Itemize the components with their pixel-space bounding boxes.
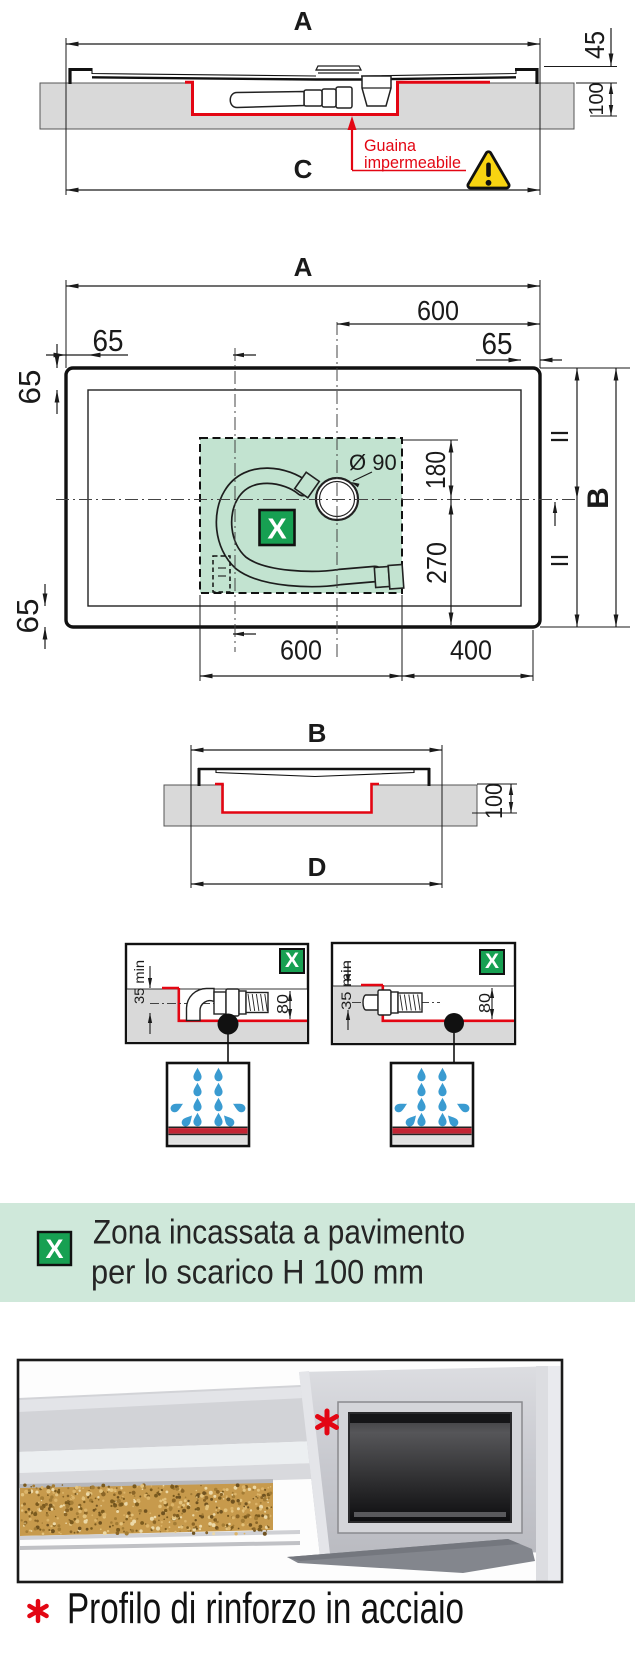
svg-text:C: C	[294, 154, 313, 184]
svg-text:A: A	[294, 252, 313, 282]
svg-text:600: 600	[280, 635, 322, 666]
svg-text:X: X	[485, 950, 499, 973]
svg-text:Zona incassata a pavimento: Zona incassata a pavimento	[93, 1214, 465, 1252]
svg-text:180: 180	[420, 451, 451, 489]
svg-text:65: 65	[10, 599, 45, 634]
svg-text:per lo scarico H 100 mm: per lo scarico H 100 mm	[91, 1254, 424, 1292]
svg-text:X: X	[45, 1234, 63, 1264]
svg-text:65: 65	[93, 323, 124, 358]
svg-text:100: 100	[481, 783, 508, 819]
svg-text:B: B	[582, 487, 615, 509]
svg-text:impermeabile: impermeabile	[364, 153, 461, 172]
svg-text:80: 80	[275, 994, 292, 1014]
svg-text:X: X	[267, 514, 287, 546]
svg-text:B: B	[308, 718, 327, 748]
svg-text:A: A	[294, 6, 313, 36]
svg-text:D: D	[308, 852, 327, 882]
svg-text:Ø 90: Ø 90	[349, 450, 397, 475]
svg-text:400: 400	[450, 635, 492, 666]
svg-text:600: 600	[417, 295, 459, 326]
svg-text:65: 65	[12, 370, 47, 405]
svg-text:45: 45	[579, 31, 610, 59]
svg-text:100: 100	[586, 83, 608, 116]
svg-text:80: 80	[477, 993, 494, 1013]
svg-text:35 min: 35 min	[132, 960, 147, 1004]
svg-text:65: 65	[482, 326, 513, 361]
svg-text:Profilo di rinforzo in acciaio: Profilo di rinforzo in acciaio	[67, 1584, 464, 1633]
svg-text:270: 270	[421, 542, 452, 584]
svg-text:35 min: 35 min	[339, 960, 354, 1010]
svg-text:X: X	[285, 949, 299, 972]
